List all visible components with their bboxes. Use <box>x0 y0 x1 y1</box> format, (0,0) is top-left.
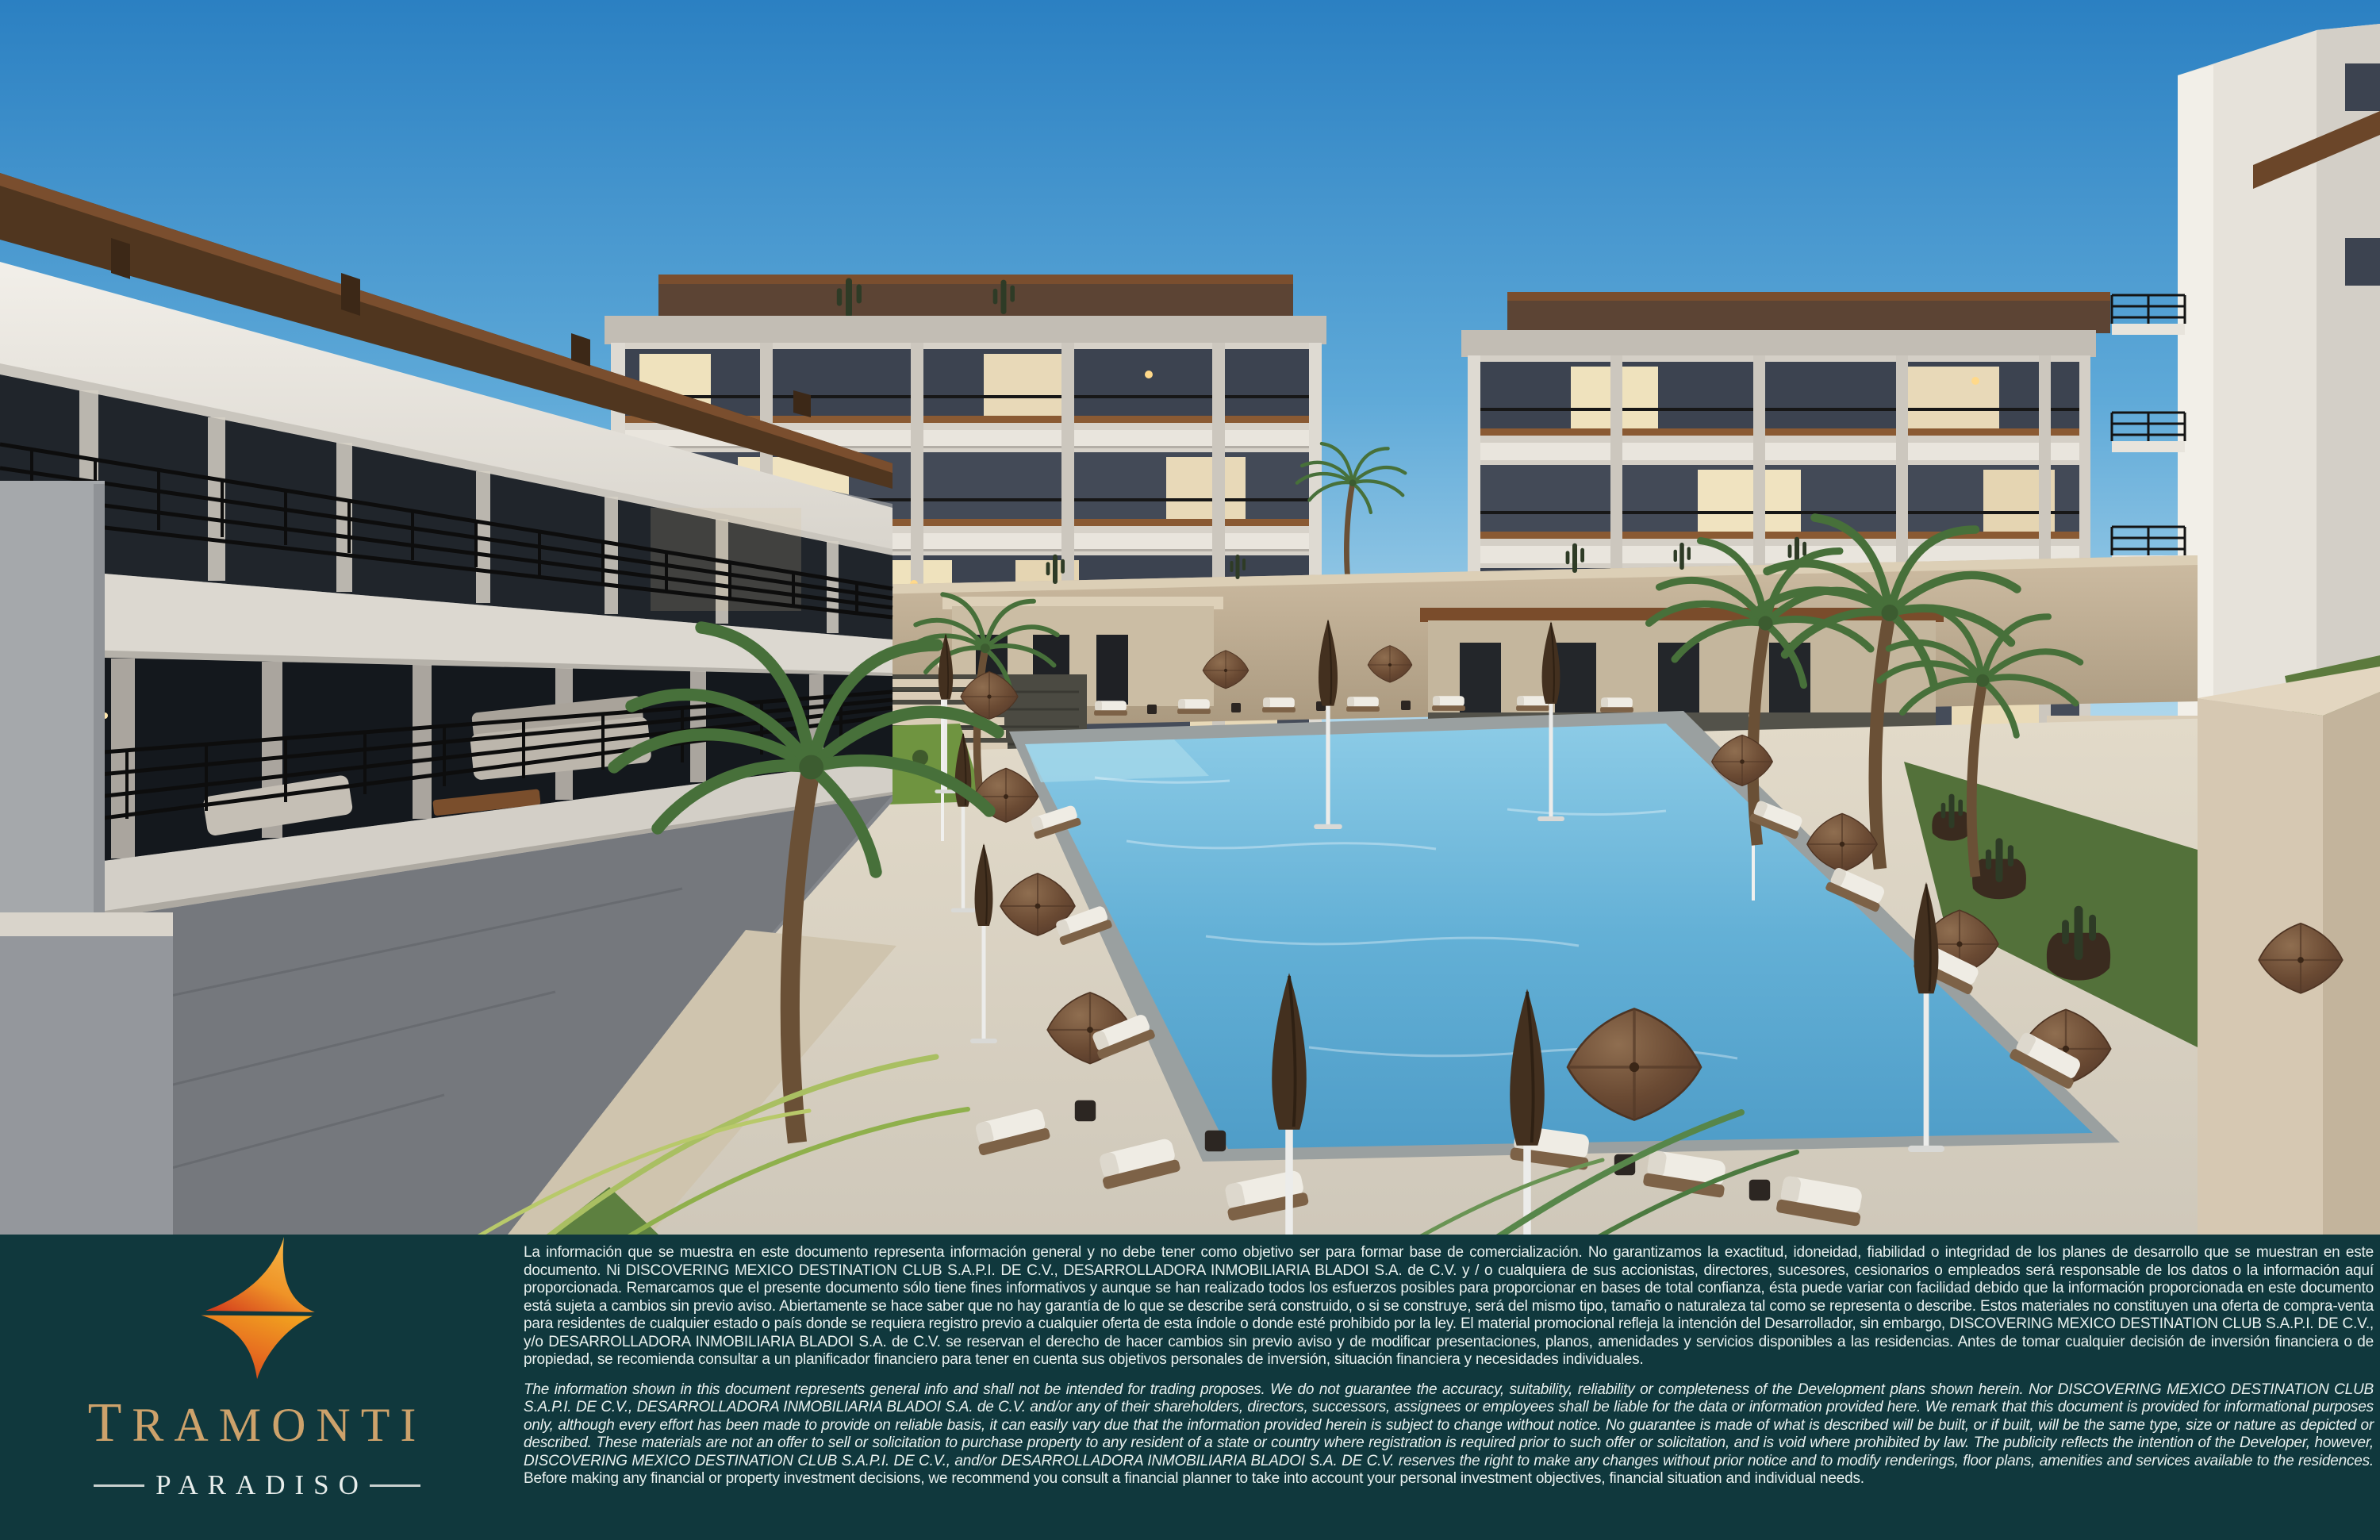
legal-disclaimers: La información que se muestra en este do… <box>524 1244 2374 1488</box>
brand-logo-flash-icon <box>201 1235 317 1383</box>
disclaimer-english-italic: The information shown in this document r… <box>524 1381 2374 1469</box>
brand-block: TRAMONTI PARADISO <box>0 1235 508 1540</box>
resort-rendering <box>0 0 2380 1235</box>
brand-tagline-text: PARADISO <box>146 1469 368 1501</box>
disclaimer-spanish: La información que se muestra en este do… <box>524 1244 2374 1369</box>
footer: TRAMONTI PARADISO La información que se … <box>0 1235 2380 1540</box>
disclaimer-english: The information shown in this document r… <box>524 1381 2374 1488</box>
disclaimer-english-final: Before making any financial or property … <box>524 1470 1864 1487</box>
brand-tagline: PARADISO <box>83 1469 432 1501</box>
tagline-right-rule <box>370 1484 420 1487</box>
brand-name: TRAMONTI <box>83 1398 432 1450</box>
brochure-page: TRAMONTI PARADISO La información que se … <box>0 0 2380 1540</box>
tagline-left-rule <box>94 1484 144 1487</box>
